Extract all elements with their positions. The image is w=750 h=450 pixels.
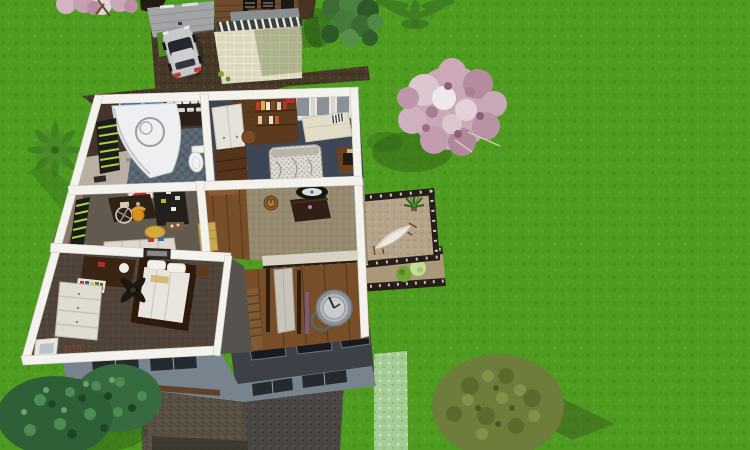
nightstand[interactable] xyxy=(196,266,209,276)
wardrobe[interactable] xyxy=(212,104,248,185)
pillow xyxy=(147,260,165,270)
picture-frame[interactable] xyxy=(144,249,170,259)
white-dresser[interactable] xyxy=(55,282,102,340)
viewport-3d-scene[interactable]: KIT xyxy=(0,0,750,450)
striped-pillow xyxy=(331,113,345,123)
garage-handle xyxy=(178,22,182,25)
bathroom-window[interactable] xyxy=(96,118,120,174)
office-shelf[interactable] xyxy=(166,222,184,230)
door-frame xyxy=(266,268,270,332)
mauve-panel xyxy=(305,292,309,334)
pillow xyxy=(167,263,185,273)
design-viewport[interactable]: KIT xyxy=(0,0,750,450)
tree-shadow-on-patio xyxy=(254,26,302,76)
bathtub-drain xyxy=(126,158,130,162)
pale-grass-patch xyxy=(374,351,408,450)
wall-letters[interactable]: KIT xyxy=(63,344,85,356)
main-deck[interactable] xyxy=(358,188,440,268)
room-bedroom-1[interactable] xyxy=(205,89,364,188)
console-table[interactable] xyxy=(290,196,331,222)
round-side-table[interactable] xyxy=(242,130,256,144)
office-chair[interactable] xyxy=(132,208,145,221)
desk-lamp xyxy=(119,263,129,273)
yellow-rug[interactable] xyxy=(145,226,165,238)
balcony[interactable] xyxy=(356,188,446,292)
open-door[interactable] xyxy=(274,268,295,333)
door-frame xyxy=(297,270,301,334)
tree-shadow xyxy=(367,132,403,152)
flower-dot xyxy=(308,205,312,209)
lounge-chair[interactable] xyxy=(281,0,294,9)
wooden-wall-clock[interactable] xyxy=(264,196,278,210)
room-entry-stairwell[interactable] xyxy=(240,262,370,352)
